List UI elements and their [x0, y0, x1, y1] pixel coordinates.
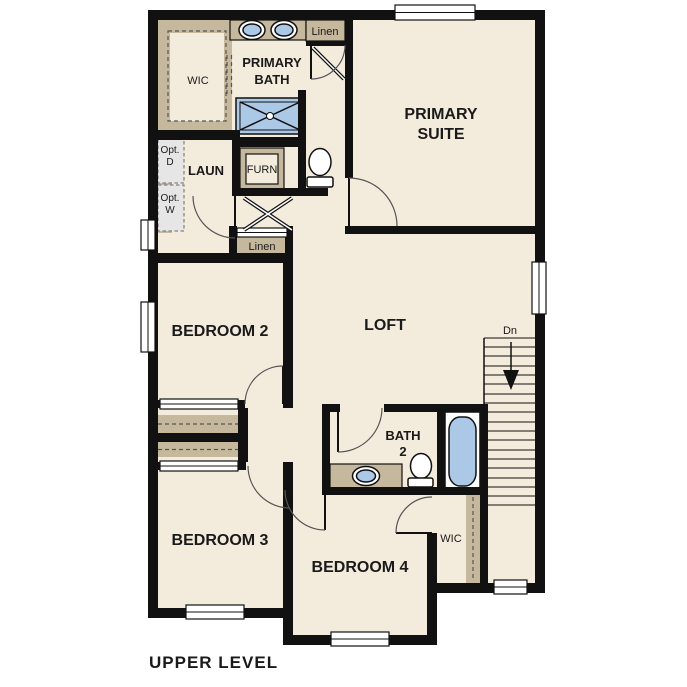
window-icon: [532, 262, 546, 314]
bath2-label-line1: BATH: [385, 428, 420, 443]
floor-plan-page: WIC PRIMARY BATH Linen PRIMARY SUITE Opt…: [0, 0, 687, 687]
window-icon: [141, 220, 155, 250]
sink-basin-icon: [357, 470, 376, 482]
window-icon: [395, 5, 475, 20]
bathtub-icon: [445, 412, 480, 491]
furnace-label: FURN: [247, 164, 278, 176]
primary-bath-label-line2: BATH: [254, 72, 289, 87]
opt-dryer-label-line2: D: [166, 157, 173, 168]
wic-bedroom4-label: WIC: [440, 533, 461, 545]
opt-washer-label-line1: Opt.: [161, 193, 180, 204]
sliding-door-icon: [160, 461, 238, 471]
bedroom3-label: BEDROOM 3: [172, 532, 269, 549]
laundry-label: LAUN: [188, 163, 224, 178]
bedroom4-label: BEDROOM 4: [312, 559, 409, 576]
sliding-door-icon: [160, 399, 238, 409]
bedroom2-label: BEDROOM 2: [172, 323, 269, 340]
opt-washer-label-line2: W: [165, 205, 175, 216]
shower-icon: [236, 98, 304, 134]
opt-dryer-label-line1: Opt.: [161, 145, 180, 156]
primary-suite-label-line2: SUITE: [417, 126, 464, 143]
sink-basin-icon: [243, 24, 261, 36]
primary-suite-label-line1: PRIMARY: [404, 106, 478, 123]
bedroom3-closet-shelf: [158, 442, 238, 457]
plan-title: UPPER LEVEL: [149, 653, 278, 672]
wic-top-label: WIC: [187, 75, 208, 87]
bedroom2-closet-shelf: [158, 415, 238, 433]
bath2-label-line2: 2: [399, 444, 406, 459]
primary-bath-label-line1: PRIMARY: [242, 55, 302, 70]
floor-plan-svg: WIC PRIMARY BATH Linen PRIMARY SUITE Opt…: [0, 0, 687, 687]
window-icon: [186, 605, 244, 619]
linen-top-label: Linen: [312, 26, 339, 38]
toilet-icon: [307, 149, 333, 188]
window-icon: [141, 302, 155, 352]
linen-hall-label: Linen: [249, 241, 276, 253]
sink-basin-icon: [275, 24, 293, 36]
stairs-down-label: Dn: [503, 325, 517, 337]
window-icon: [331, 632, 389, 646]
toilet-icon: [408, 454, 433, 488]
loft-label: LOFT: [364, 317, 406, 334]
window-icon: [494, 580, 527, 594]
